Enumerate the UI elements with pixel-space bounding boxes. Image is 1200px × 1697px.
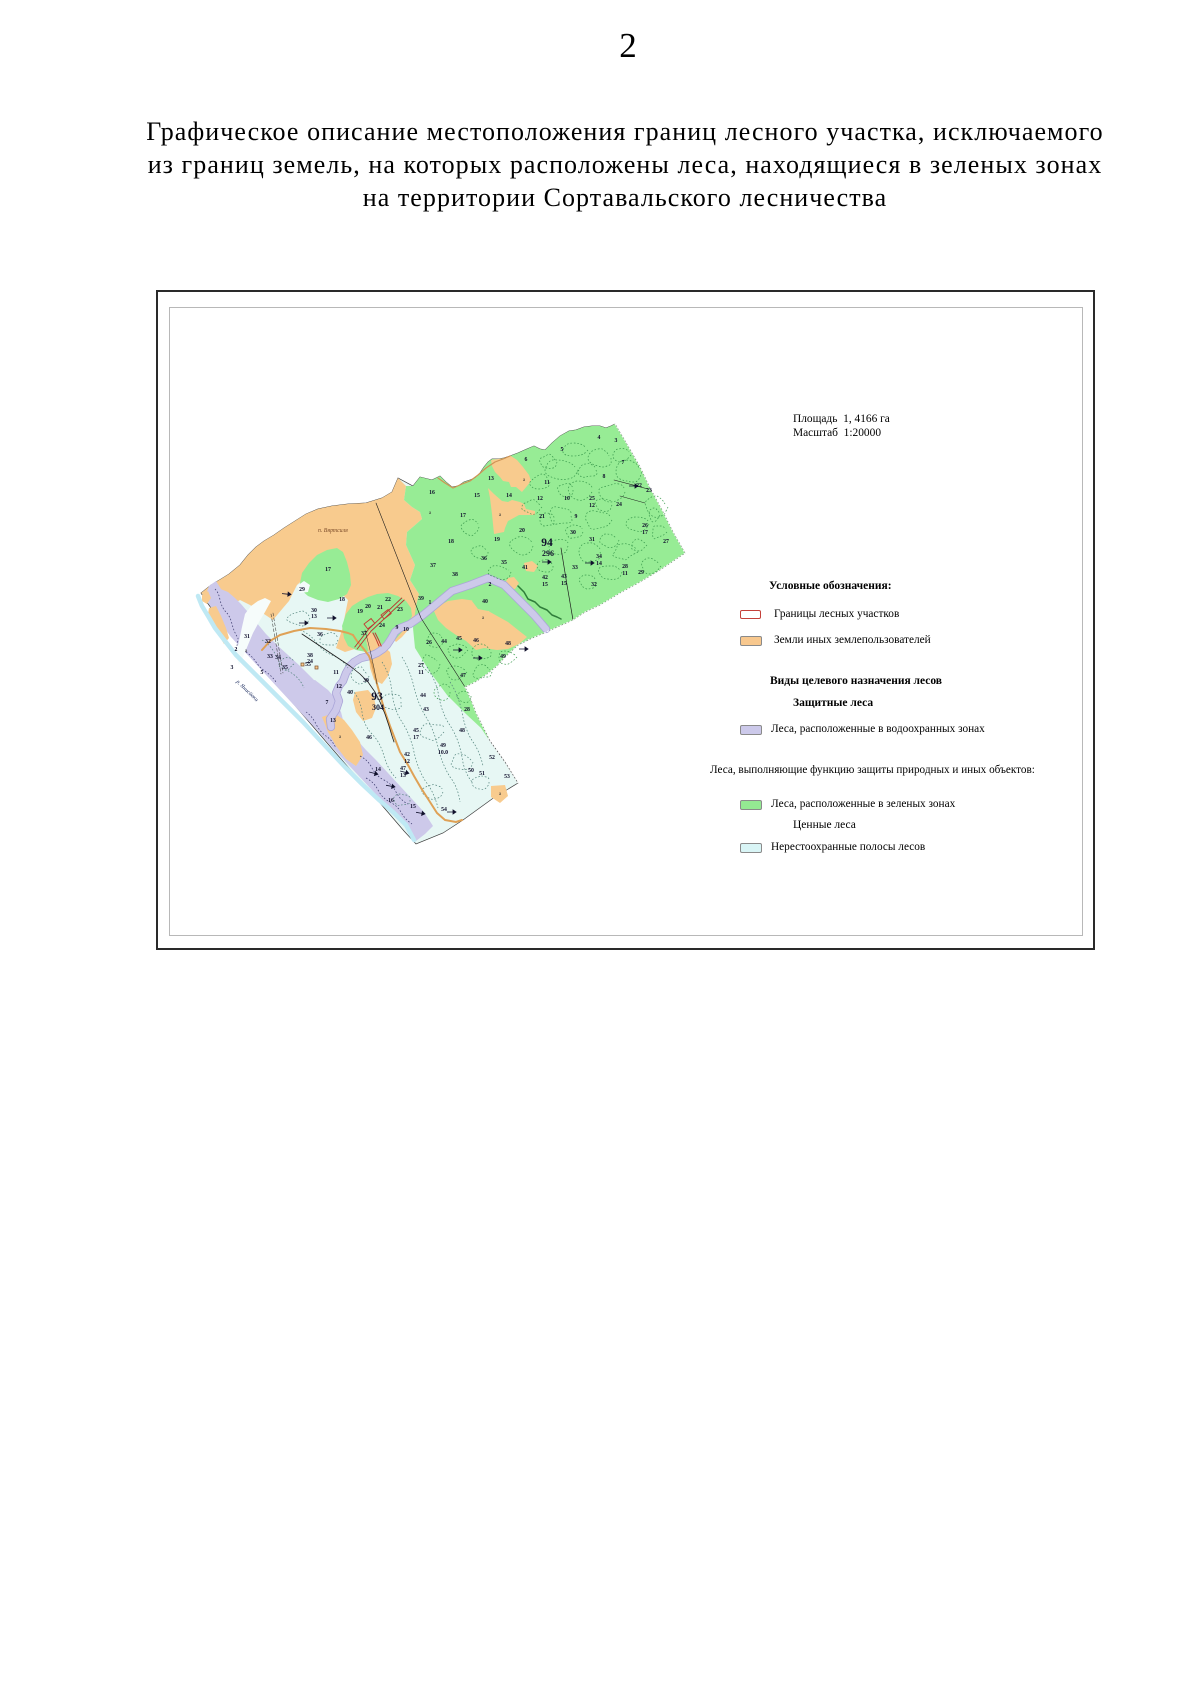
svg-text:12: 12 [537, 496, 543, 502]
svg-text:39: 39 [363, 678, 369, 684]
svg-text:29: 29 [638, 570, 644, 576]
svg-text:15: 15 [542, 582, 548, 588]
svg-text:27: 27 [663, 539, 669, 545]
svg-text:36: 36 [317, 632, 323, 638]
svg-text:35: 35 [501, 560, 507, 566]
svg-text:9: 9 [396, 625, 399, 631]
svg-text:10: 10 [564, 496, 570, 502]
svg-text:12: 12 [589, 503, 595, 509]
svg-text:3: 3 [615, 438, 618, 444]
svg-text:94: 94 [541, 537, 553, 549]
svg-text:26: 26 [426, 640, 432, 646]
svg-text:9: 9 [575, 514, 578, 520]
svg-text:21: 21 [377, 605, 383, 611]
svg-text:21: 21 [539, 514, 545, 520]
svg-text:45: 45 [413, 728, 419, 734]
svg-text:25: 25 [589, 496, 595, 502]
svg-text:23: 23 [646, 488, 652, 494]
svg-text:26: 26 [642, 523, 648, 529]
svg-text:11: 11 [544, 480, 550, 486]
svg-text:17: 17 [413, 735, 419, 741]
svg-text:22: 22 [385, 597, 391, 603]
svg-text:18: 18 [339, 597, 345, 603]
svg-text:15: 15 [474, 493, 480, 499]
svg-text:11: 11 [622, 571, 628, 577]
svg-text:34: 34 [275, 655, 281, 661]
svg-text:23: 23 [397, 607, 403, 613]
svg-text:11: 11 [418, 670, 424, 676]
svg-text:п. Вяртсиля: п. Вяртсиля [318, 528, 348, 534]
svg-text:14: 14 [596, 561, 602, 567]
svg-text:44: 44 [441, 639, 447, 645]
svg-text:42: 42 [542, 575, 548, 581]
svg-text:10: 10 [403, 627, 409, 633]
svg-text:54: 54 [441, 807, 447, 813]
svg-text:38: 38 [452, 572, 458, 578]
svg-text:37: 37 [361, 631, 367, 637]
svg-text:42: 42 [404, 752, 410, 758]
svg-text:46: 46 [473, 638, 479, 644]
svg-text:32: 32 [591, 582, 597, 588]
svg-text:24: 24 [379, 623, 385, 629]
svg-text:13: 13 [330, 718, 336, 724]
svg-text:29: 29 [299, 587, 305, 593]
svg-text:20: 20 [519, 528, 525, 534]
svg-text:41: 41 [522, 565, 528, 571]
svg-text:15: 15 [561, 581, 567, 587]
svg-text:12: 12 [336, 684, 342, 690]
svg-text:5: 5 [261, 670, 264, 676]
svg-text:2: 2 [489, 582, 492, 588]
svg-text:40: 40 [482, 599, 488, 605]
svg-text:33: 33 [572, 565, 578, 571]
svg-text:7: 7 [622, 460, 625, 466]
svg-text:30: 30 [570, 530, 576, 536]
svg-text:13: 13 [488, 476, 494, 482]
svg-text:19: 19 [494, 537, 500, 543]
svg-text:43: 43 [561, 574, 567, 580]
svg-text:296: 296 [542, 549, 554, 558]
svg-text:304: 304 [372, 703, 384, 712]
svg-text:32: 32 [265, 639, 271, 645]
svg-text:33: 33 [267, 654, 273, 660]
svg-text:52: 52 [489, 755, 495, 761]
svg-text:47: 47 [460, 673, 466, 679]
svg-text:20: 20 [365, 604, 371, 610]
svg-text:12: 12 [404, 759, 410, 765]
svg-text:39: 39 [418, 596, 424, 602]
svg-text:46: 46 [366, 735, 372, 741]
svg-text:15: 15 [410, 804, 416, 810]
svg-text:48: 48 [459, 728, 465, 734]
svg-text:27: 27 [418, 663, 424, 669]
svg-text:6: 6 [525, 457, 528, 463]
svg-text:8: 8 [603, 474, 606, 480]
svg-text:24: 24 [616, 502, 622, 508]
svg-text:16: 16 [388, 798, 394, 804]
svg-text:10.0: 10.0 [438, 750, 448, 756]
svg-text:48: 48 [505, 641, 511, 647]
svg-text:31: 31 [244, 634, 250, 640]
svg-text:17: 17 [325, 567, 331, 573]
svg-text:51: 51 [479, 771, 485, 777]
svg-text:44: 44 [420, 693, 426, 699]
svg-text:37: 37 [430, 563, 436, 569]
svg-text:13: 13 [311, 614, 317, 620]
svg-text:28: 28 [622, 564, 628, 570]
svg-text:7: 7 [326, 700, 329, 706]
svg-text:45: 45 [456, 636, 462, 642]
svg-text:3: 3 [231, 665, 234, 671]
svg-text:34: 34 [596, 554, 602, 560]
svg-text:11: 11 [333, 670, 339, 676]
svg-text:14: 14 [506, 493, 512, 499]
svg-text:2: 2 [235, 647, 238, 653]
svg-text:36: 36 [481, 556, 487, 562]
svg-text:24: 24 [307, 659, 313, 665]
svg-text:18: 18 [448, 539, 454, 545]
svg-text:17: 17 [460, 513, 466, 519]
svg-text:4: 4 [598, 435, 601, 441]
svg-text:43: 43 [423, 707, 429, 713]
svg-text:28: 28 [464, 707, 470, 713]
svg-text:53: 53 [504, 774, 510, 780]
svg-text:13: 13 [400, 773, 406, 779]
svg-text:16: 16 [429, 490, 435, 496]
svg-text:49: 49 [500, 654, 506, 660]
svg-text:49: 49 [440, 743, 446, 749]
svg-text:19: 19 [357, 609, 363, 615]
svg-text:50: 50 [468, 768, 474, 774]
svg-text:5: 5 [561, 447, 564, 453]
svg-text:17: 17 [642, 530, 648, 536]
svg-text:1: 1 [429, 600, 432, 606]
svg-text:31: 31 [589, 537, 595, 543]
svg-text:35: 35 [282, 665, 288, 671]
svg-text:40: 40 [347, 690, 353, 696]
svg-text:р. Янисйоки: р. Янисйоки [234, 678, 260, 704]
